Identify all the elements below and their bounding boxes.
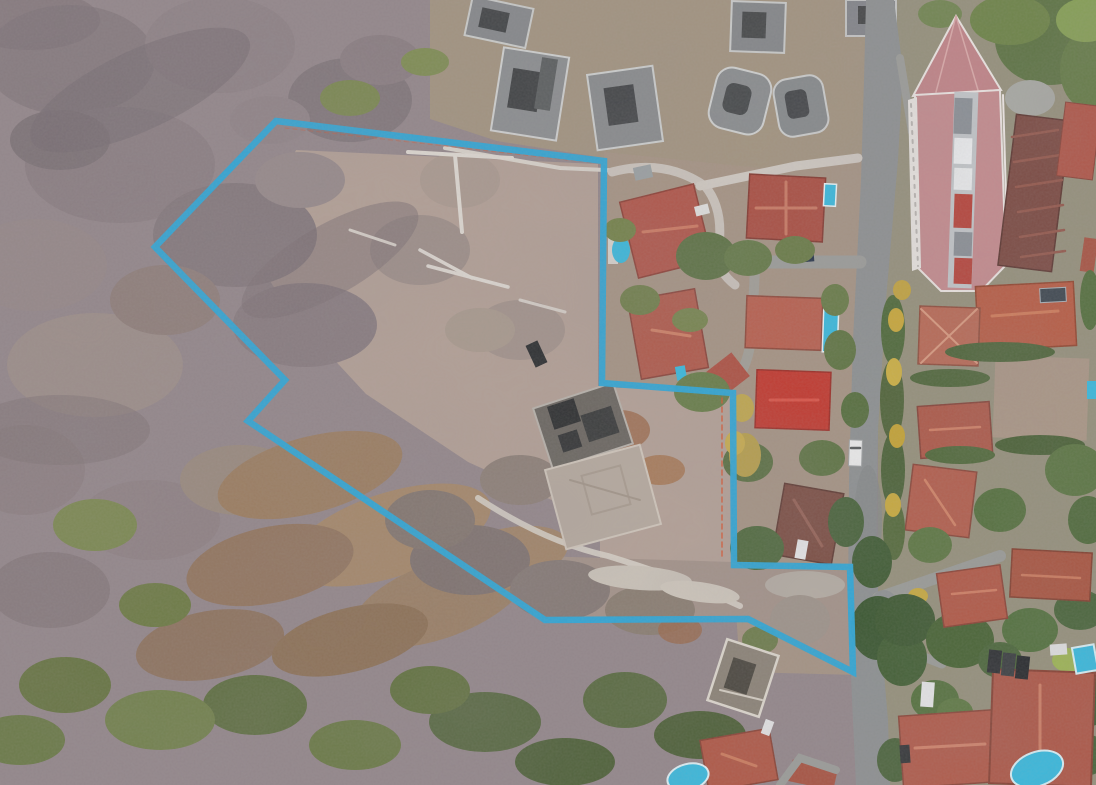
- photo-grain-texture: [0, 0, 1096, 785]
- aerial-photo-stage: [0, 0, 1096, 785]
- aerial-drone-photo: [0, 0, 1096, 785]
